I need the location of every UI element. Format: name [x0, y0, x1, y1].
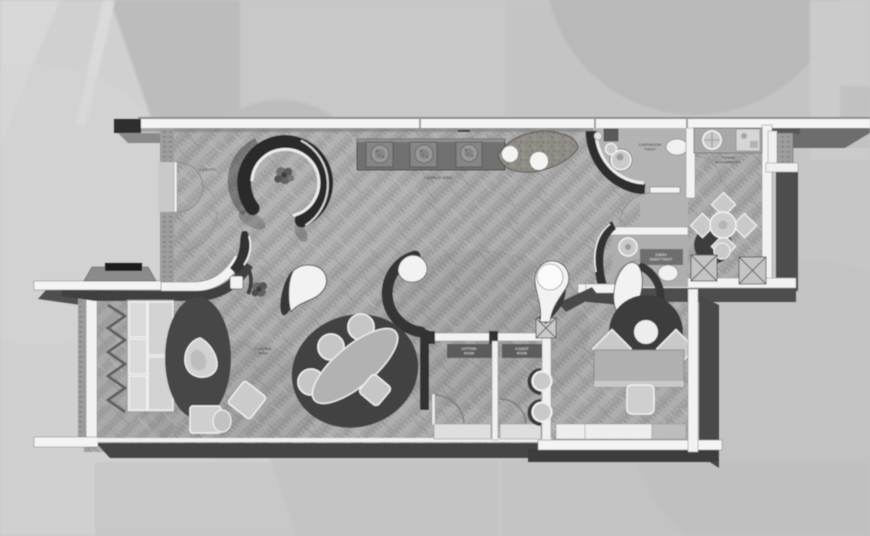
svg-text:1 ENTRY: 1 ENTRY	[199, 167, 216, 172]
svg-text:6.BATHROOM: 6.BATHROOM	[639, 143, 661, 147]
svg-text:3.FITTING: 3.FITTING	[461, 347, 477, 351]
svg-text:1 DISPLAY AREA: 1 DISPLAY AREA	[424, 176, 453, 180]
svg-text:4.GUEST: 4.GUEST	[515, 347, 529, 351]
svg-text:ROOM: ROOM	[517, 352, 527, 356]
svg-text:2.LOUNGE: 2.LOUNGE	[254, 347, 272, 351]
svg-text:ROOM: ROOM	[464, 352, 474, 356]
svg-text:ROOM/PANTRY: ROOM/PANTRY	[716, 160, 742, 164]
svg-text:AREA: AREA	[258, 352, 268, 356]
svg-text:5.BATH: 5.BATH	[656, 253, 668, 257]
svg-text:TOILET: TOILET	[644, 147, 656, 151]
svg-text:GUEST TOILET: GUEST TOILET	[650, 258, 673, 262]
svg-text:7.DINING: 7.DINING	[721, 156, 736, 160]
